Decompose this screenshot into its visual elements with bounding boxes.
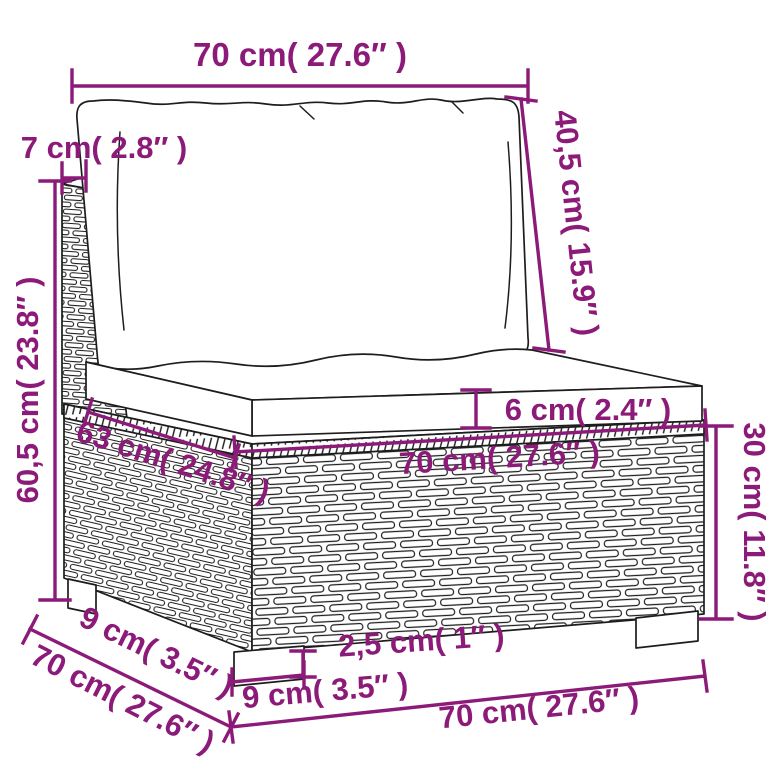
dimension-label: 70 cm( 27.6″ ) [437,680,641,736]
dimension-label: 60,5 cm( 23.8″ ) [10,277,45,504]
dimension-total-height: 60,5 cm( 23.8″ ) [10,181,70,600]
dimension-label: 30 cm( 11.8″ ) [737,422,767,621]
sofa-dimension-drawing: 70 cm( 27.6″ ) 7 cm( 2.8″ ) 60,5 cm( 23.… [0,0,767,767]
right-leg [636,611,698,648]
dimension-label: 70 cm( 27.6″ ) [193,36,407,73]
dimension-label: 7 cm( 2.8″ ) [21,130,187,165]
dimension-line [72,70,528,102]
dimension-label: 6 cm( 2.4″ ) [505,392,671,427]
dimension-base-height: 30 cm( 11.8″ ) [700,422,767,621]
dimension-top-width: 70 cm( 27.6″ ) [72,36,528,102]
dimension-label: 40,5 cm( 15.9″ ) [547,108,606,337]
dimension-diagram: 70 cm( 27.6″ ) 7 cm( 2.8″ ) 60,5 cm( 23.… [0,0,767,767]
